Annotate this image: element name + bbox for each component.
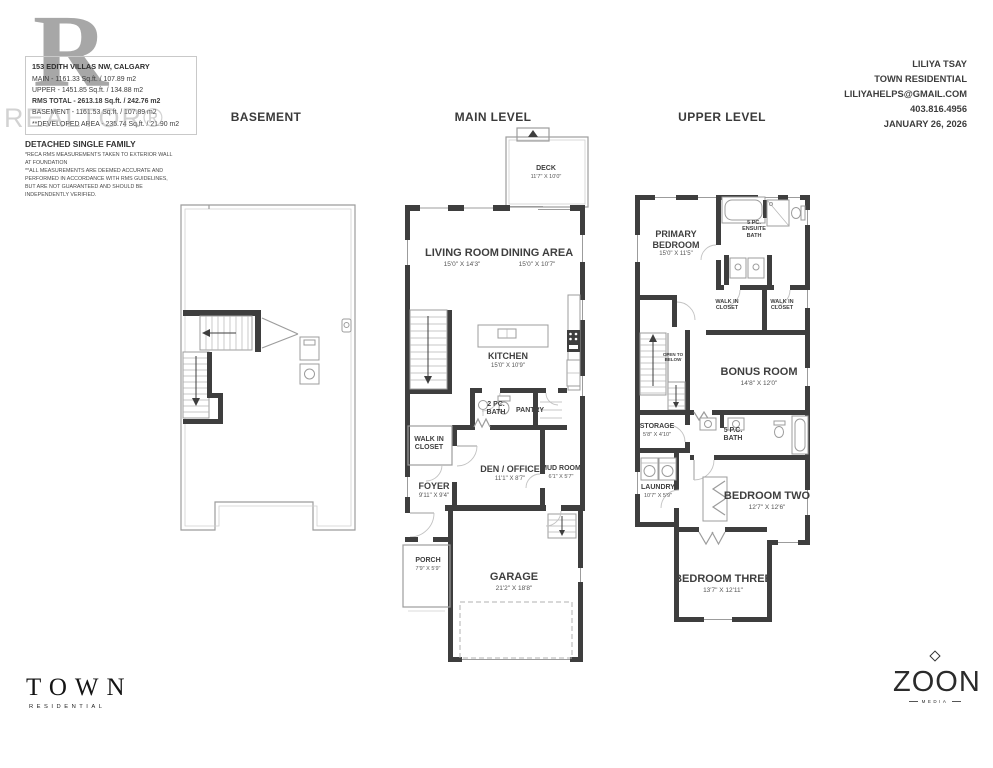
- kitchen-fixtures: [478, 295, 580, 390]
- basement-title: BASEMENT: [231, 110, 302, 124]
- zoon-diamond-icon: [929, 650, 940, 661]
- room-name: CLOSET: [414, 444, 444, 452]
- room-dims: 13'7" X 12'11": [674, 587, 772, 595]
- room-label-deck: DECK 11'7" X 10'0": [531, 165, 562, 181]
- room-label-walk-in-closet-2: WALK IN CLOSET: [770, 299, 793, 312]
- zoon-logo-wordmark: ZOON: [893, 667, 977, 697]
- primary-ensuite-walls: [635, 195, 721, 327]
- room-name: BEDROOM THREE: [674, 573, 772, 586]
- room-dims: 15'0" X 14'3": [425, 261, 499, 269]
- room-label-walk-in-closet-1: WALK IN CLOSET: [715, 299, 738, 312]
- room-name: CLOSET: [715, 305, 738, 311]
- room-name: KITCHEN: [488, 351, 528, 362]
- room-dims: 11'7" X 10'0": [531, 174, 562, 180]
- zoon-rule-left: [909, 701, 918, 702]
- room-name: LIVING ROOM: [425, 247, 499, 260]
- town-logo-wordmark: TOWN: [26, 674, 133, 702]
- room-label-bonus-room: BONUS ROOM 14'8" X 12'0": [721, 366, 798, 388]
- floor-plan-page: R REALTOR® 153 EDITH VILLAS NW, CALGARY …: [0, 0, 993, 768]
- agent-email: LILIYAHELPS@GMAIL.COM: [844, 87, 967, 102]
- room-name: BEDROOM: [653, 240, 700, 251]
- room-name: CLOSET: [770, 305, 793, 311]
- utility-appliances: [300, 319, 351, 384]
- room-name: BONUS ROOM: [721, 366, 798, 379]
- room-name: MUD ROOM: [541, 465, 581, 473]
- room-name: BATH: [724, 435, 743, 443]
- room-label-porch: PORCH 7'9" X 5'9": [415, 557, 440, 573]
- ensuite-fixtures: [722, 197, 805, 285]
- room-name: PRIMARY: [653, 229, 700, 240]
- room-label-living-room: LIVING ROOM 15'0" X 14'3": [425, 247, 499, 269]
- room-name: 5 P.C.: [724, 427, 743, 435]
- room-name: 2 PC.: [487, 401, 506, 409]
- disclaimer-line: INDEPENDENTLY VERIFIED.: [25, 192, 172, 200]
- room-label-garage: GARAGE 21'2" X 18'8": [490, 571, 538, 593]
- room-label-2pc-bath: 2 PC. BATH: [487, 401, 506, 418]
- room-label-foyer: FOYER 9'11" X 9'4": [418, 481, 449, 500]
- room-dims: 15'0" X 10'7": [501, 261, 573, 269]
- room-name: LAUNDRY: [641, 484, 675, 492]
- room-dims: 21'2" X 18'8": [490, 585, 538, 593]
- room-label-dining-area: DINING AREA 15'0" X 10'7": [501, 247, 573, 269]
- room-name: ENSUITE: [742, 226, 766, 232]
- area-line-developed: **DEVELOPED AREA - 235.74 Sq.ft. / 21.90…: [32, 119, 190, 130]
- zoon-logo-subtitle: MEDIA: [922, 699, 949, 704]
- room-label-den-office: DEN / OFFICE 11'1" X 8'7": [480, 464, 540, 483]
- disclaimer-line: BUT ARE NOT GUARANTEED AND SHOULD BE: [25, 184, 172, 192]
- disclaimer-line: *RECA RMS MEASUREMENTS TAKEN TO EXTERIOR…: [25, 152, 172, 160]
- main-level-title: MAIN LEVEL: [455, 110, 532, 124]
- basement-floor-plan: [176, 198, 368, 538]
- room-label-mud-room: MUD ROOM 6'1" X 5'7": [541, 465, 581, 481]
- room-label-kitchen: KITCHEN 15'0" X 10'9": [488, 351, 528, 370]
- room-dims: 11'1" X 8'7": [480, 476, 540, 483]
- room-label-5pc-bath: 5 P.C. BATH: [724, 427, 743, 444]
- zoon-media-logo: ZOON MEDIA: [893, 649, 977, 704]
- room-dims: 15'0" X 10'9": [488, 363, 528, 370]
- room-dims: 15'0" X 11'5": [653, 251, 700, 258]
- room-label-laundry: LAUNDRY 10'7" X 5'9": [641, 484, 675, 500]
- room-label-primary-bedroom: PRIMARY BEDROOM 15'0" X 11'5": [653, 229, 700, 258]
- listing-date: JANUARY 26, 2026: [844, 117, 967, 132]
- room-label-storage: STORAGE 5'8" X 4'10": [640, 423, 675, 439]
- room-name: BATH: [487, 409, 506, 417]
- room-name: WALK IN: [414, 436, 444, 444]
- room-name: BEDROOM TWO: [724, 490, 810, 503]
- room-name: PORCH: [415, 557, 440, 565]
- agent-name: LILIYA TSAY: [844, 57, 967, 72]
- disclaimer-block: *RECA RMS MEASUREMENTS TAKEN TO EXTERIOR…: [25, 152, 172, 200]
- disclaimer-line: PERFORMED IN ACCORDANCE WITH RMS GUIDELI…: [25, 176, 172, 184]
- room-dims: 7'9" X 5'9": [415, 566, 440, 572]
- property-type: DETACHED SINGLE FAMILY: [25, 139, 136, 149]
- room-label-bedroom-two: BEDROOM TWO 12'7" X 12'6": [724, 490, 810, 512]
- mud-room-walls: [526, 430, 576, 538]
- town-residential-logo: TOWN RESIDENTIAL: [26, 674, 133, 710]
- room-dims: 6'1" X 5'7": [541, 474, 581, 480]
- room-name: BATH: [742, 233, 766, 239]
- area-line-total: RMS TOTAL - 2613.18 Sq.ft. / 242.76 m2: [32, 96, 190, 107]
- room-dims: 12'7" X 12'6": [724, 504, 810, 512]
- upper-staircase: [640, 330, 690, 415]
- disclaimer-line: AT FOUNDATION: [25, 160, 172, 168]
- room-label-bedroom-three: BEDROOM THREE 13'7" X 12'11": [674, 573, 772, 595]
- main-staircase: [410, 310, 452, 394]
- bonus-room-walls: [706, 330, 810, 335]
- room-name: BELOW: [663, 357, 683, 362]
- area-line-main: MAIN - 1161.33 Sq.ft. / 107.89 m2: [32, 74, 190, 85]
- room-dims: 5'8" X 4'10": [640, 432, 675, 438]
- room-dims: 14'8" X 12'0": [721, 380, 798, 388]
- room-label-open-to-below: OPEN TO BELOW: [663, 352, 683, 363]
- porch-outline: [403, 545, 450, 611]
- room-name: DECK: [531, 165, 562, 173]
- room-name: DINING AREA: [501, 247, 573, 260]
- room-name: PANTRY: [516, 407, 544, 415]
- room-name: STORAGE: [640, 423, 675, 431]
- room-name: DEN / OFFICE: [480, 464, 540, 475]
- room-dims: 9'11" X 9'4": [418, 493, 449, 500]
- agent-company: TOWN RESIDENTIAL: [844, 72, 967, 87]
- agent-phone: 403.816.4956: [844, 102, 967, 117]
- upper-level-title: UPPER LEVEL: [678, 110, 766, 124]
- town-logo-subtitle: RESIDENTIAL: [29, 704, 133, 710]
- area-line-basement: BASEMENT - 1161.53 Sq.ft. / 107.89 m2: [32, 107, 190, 118]
- listing-address: 153 EDITH VILLAS NW, CALGARY: [32, 61, 190, 73]
- zoon-rule-right: [952, 701, 961, 702]
- room-dims: 10'7" X 5'9": [641, 493, 675, 499]
- room-name: GARAGE: [490, 571, 538, 584]
- agent-contact-block: LILIYA TSAY TOWN RESIDENTIAL LILIYAHELPS…: [844, 57, 967, 131]
- upper-exterior-walls: [635, 195, 810, 622]
- room-label-pantry: PANTRY: [516, 407, 544, 415]
- upper-bath-walls: [690, 410, 810, 480]
- disclaimer-line: **ALL MEASUREMENTS ARE DEEMED ACCURATE A…: [25, 168, 172, 176]
- room-name: FOYER: [418, 481, 449, 492]
- area-line-upper: UPPER - 1451.85 Sq.ft. / 134.88 m2: [32, 85, 190, 96]
- room-label-ensuite-bath: 5 PC. ENSUITE BATH: [742, 220, 766, 239]
- basement-staircase: [183, 310, 298, 424]
- listing-info-box: 153 EDITH VILLAS NW, CALGARY MAIN - 1161…: [25, 56, 197, 135]
- room-label-walk-in-closet-main: WALK IN CLOSET: [414, 436, 444, 453]
